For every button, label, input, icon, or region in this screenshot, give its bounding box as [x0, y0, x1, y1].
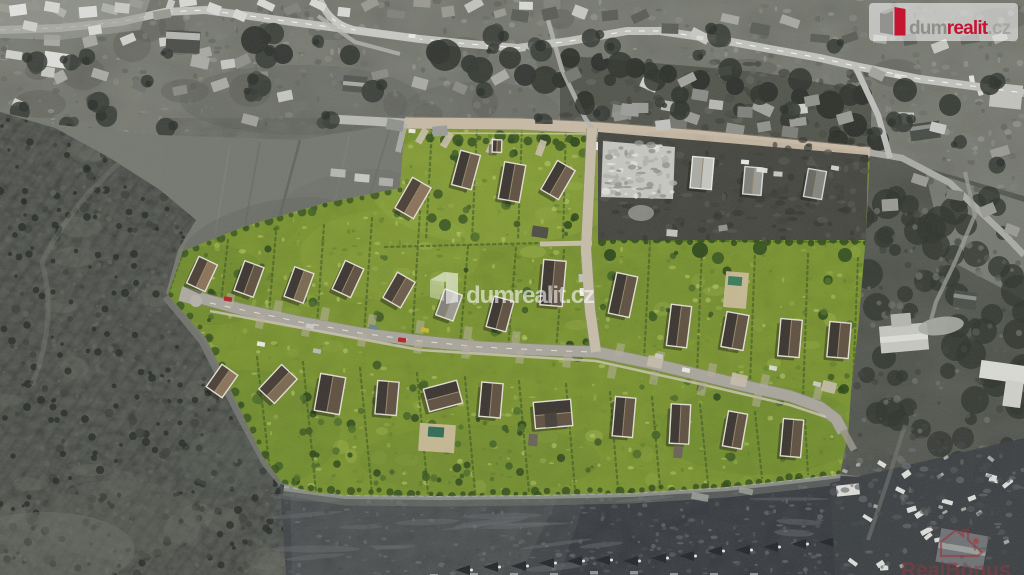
svg-text:dumrealit.cz: dumrealit.cz	[466, 282, 595, 309]
svg-text:RealBonus: RealBonus	[901, 559, 1011, 575]
svg-text:dumrealit.cz: dumrealit.cz	[909, 18, 1011, 39]
